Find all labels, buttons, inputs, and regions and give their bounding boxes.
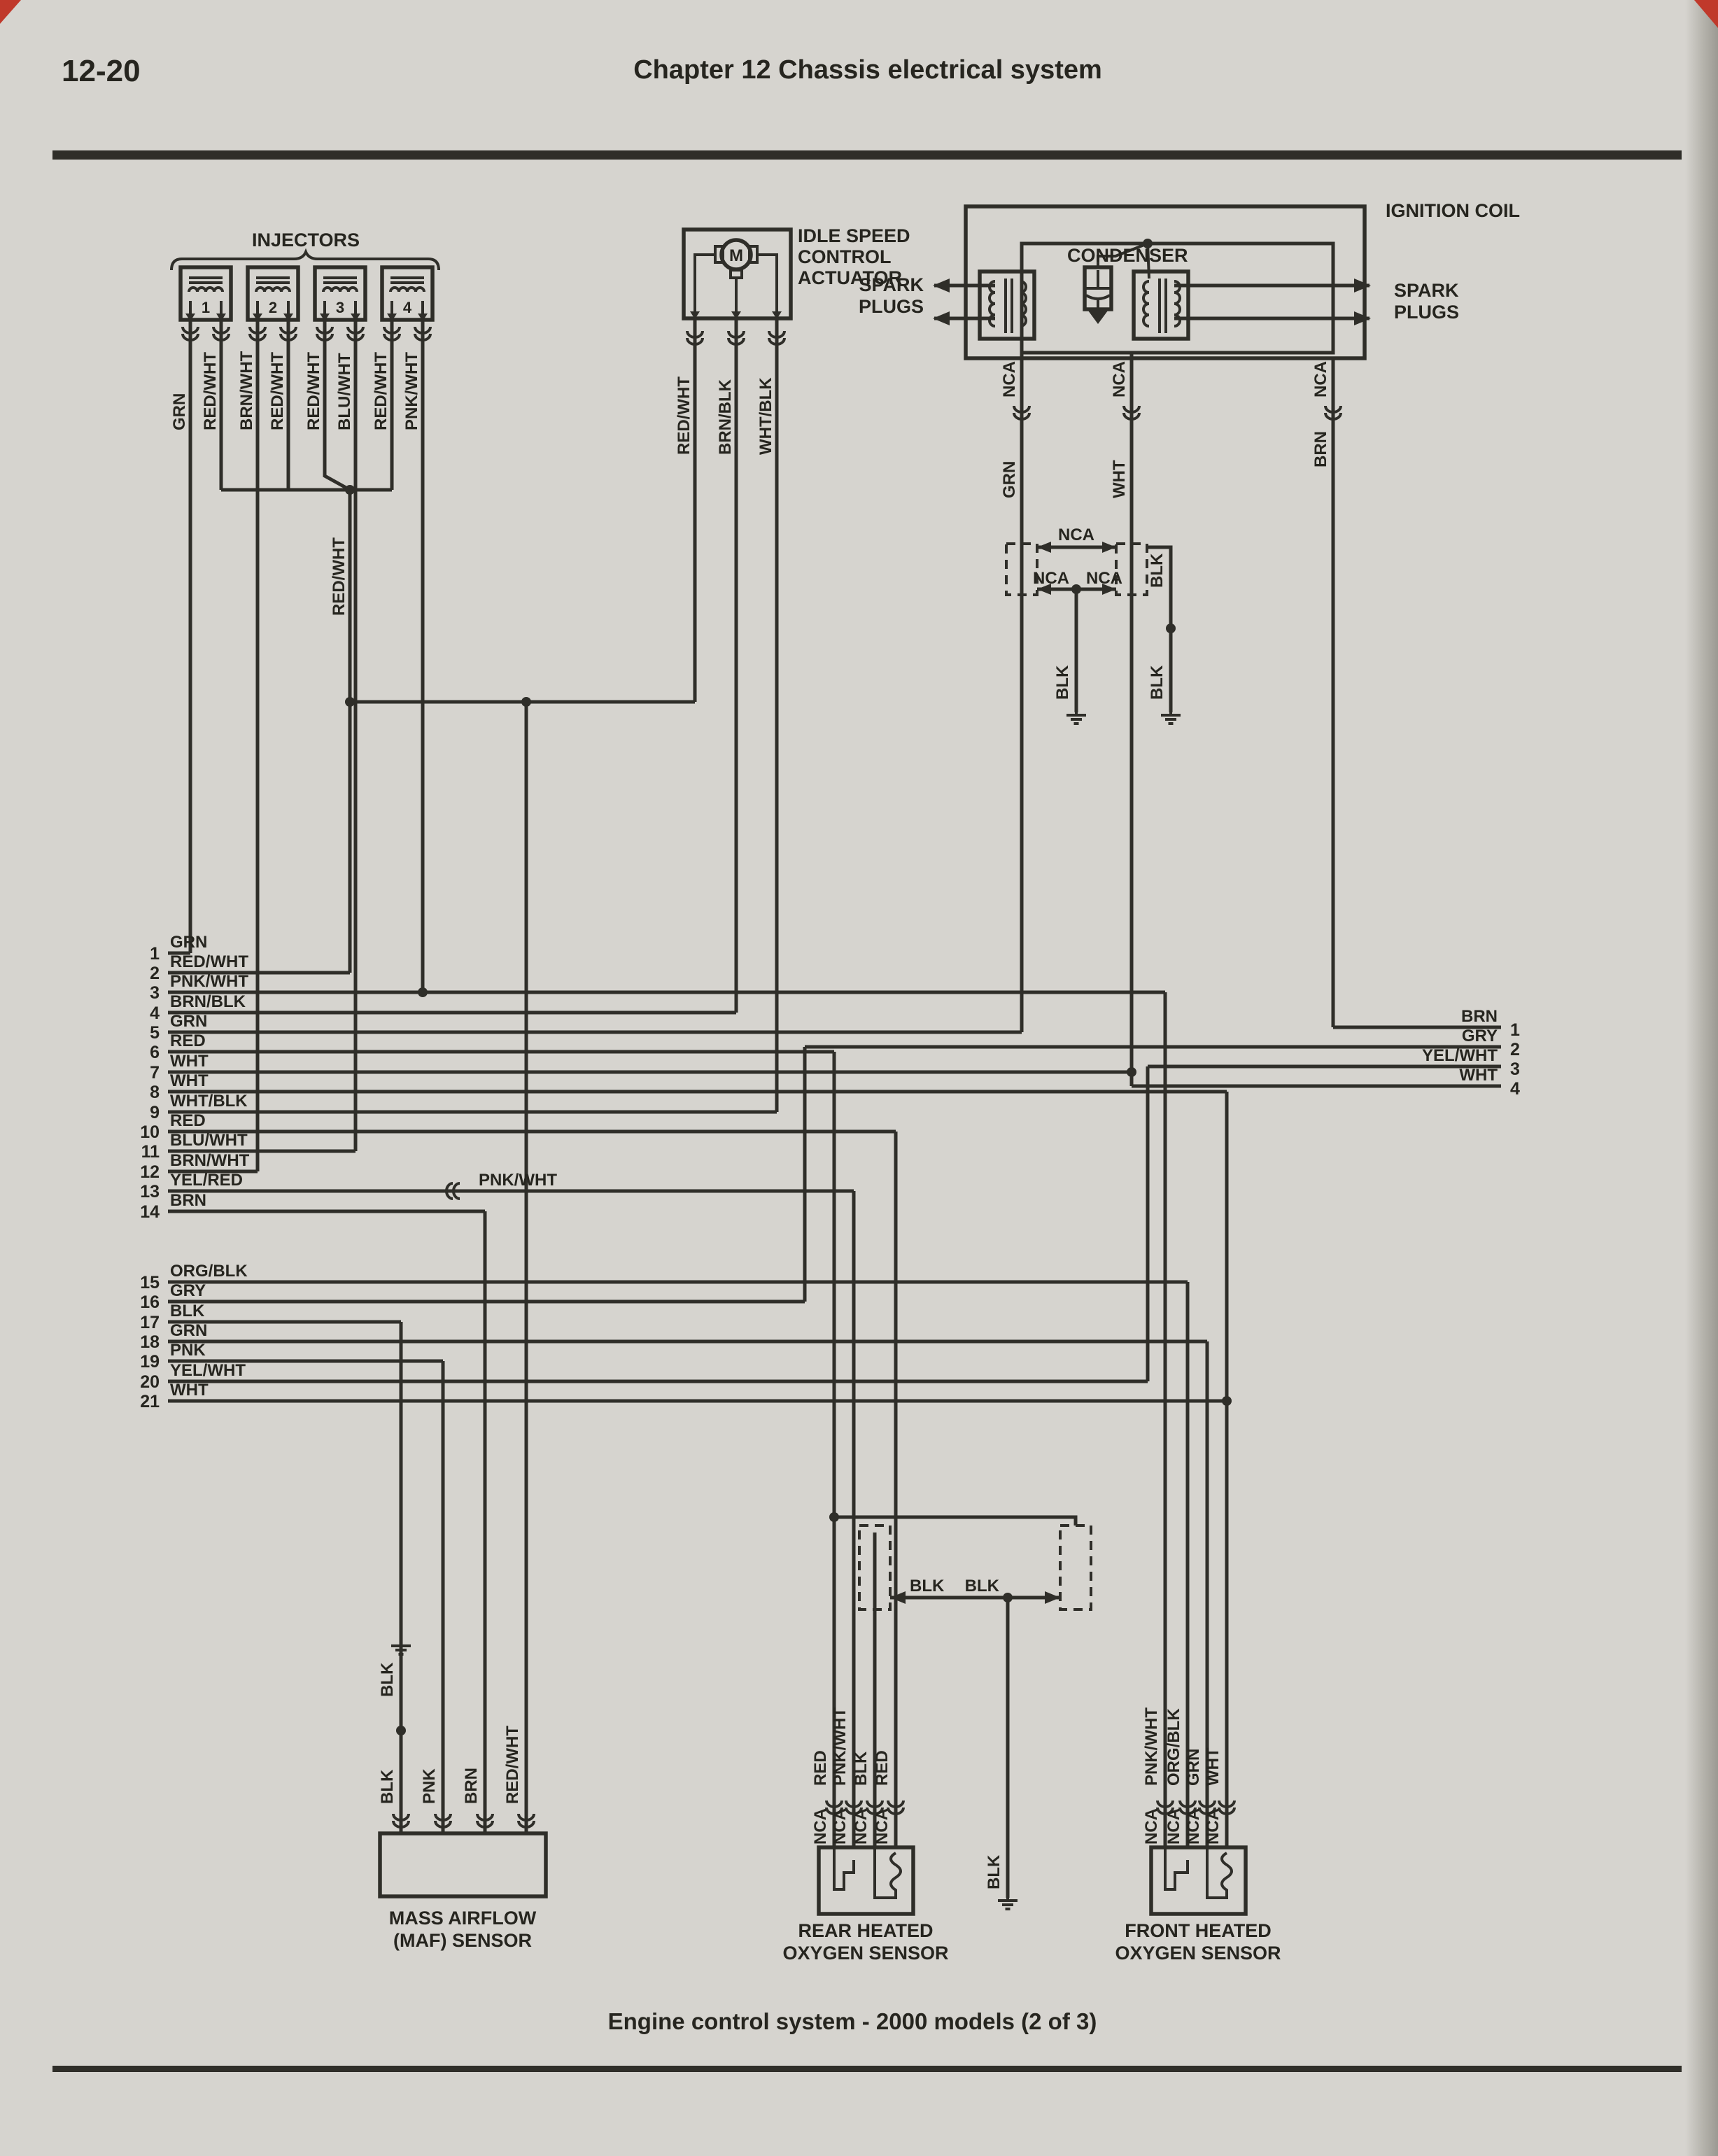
injector-number: 4 bbox=[403, 299, 412, 316]
wire-label-blk: BLK bbox=[985, 1854, 1004, 1889]
page-footer: Engine control system - 2000 models (2 o… bbox=[52, 2008, 1682, 2072]
wire-label-blk: BLK bbox=[378, 1662, 397, 1697]
terminal-label: WHT bbox=[170, 1381, 209, 1400]
maf-sensor: MASS AIRFLOW (MAF) SENSOR BLK BLK PNK BR… bbox=[378, 1211, 546, 1951]
terminal-label: GRY bbox=[1462, 1027, 1498, 1045]
wiring-diagram: 12-20 Chapter 12 Chassis electrical syst… bbox=[0, 0, 1718, 2156]
terminal-number: 20 bbox=[140, 1372, 160, 1392]
rear-o2-sensor: REAR HEATED OXYGEN SENSOR RED PNK/WHT BL… bbox=[782, 1052, 948, 1964]
injector-1: 1 bbox=[181, 267, 231, 321]
terminal-label: GRN bbox=[170, 1321, 207, 1340]
wire-label: RED bbox=[873, 1750, 892, 1786]
terminal-number: 9 bbox=[150, 1103, 160, 1122]
terminal-label: ORG/BLK bbox=[170, 1262, 248, 1281]
front-o2-title-line: FRONT HEATED bbox=[1125, 1920, 1272, 1941]
wire-label-grn: GRN bbox=[1000, 461, 1019, 498]
maf-title-line: MASS AIRFLOW bbox=[389, 1908, 537, 1929]
nca-label: NCA bbox=[1184, 1808, 1203, 1845]
page-number: 12-20 bbox=[62, 54, 141, 88]
spark-plugs-label: SPARK bbox=[1394, 280, 1459, 301]
wire-label: RED/WHT bbox=[675, 376, 693, 455]
manual-page: 12-20 Chapter 12 Chassis electrical syst… bbox=[0, 0, 1718, 2156]
condenser-label: CONDENSER bbox=[1067, 245, 1188, 266]
wire-label: BRN/WHT bbox=[237, 351, 256, 430]
nca-label: NCA bbox=[873, 1808, 892, 1845]
nca-label: NCA bbox=[1204, 1808, 1223, 1845]
wire-label: PNK/WHT bbox=[402, 352, 421, 430]
wire-label: ORG/BLK bbox=[1164, 1708, 1183, 1786]
motor-symbol: M bbox=[729, 246, 743, 265]
terminal-label: BLK bbox=[170, 1302, 205, 1320]
terminal-label: WHT bbox=[170, 1071, 209, 1090]
wire-label-blk: BLK bbox=[1148, 553, 1167, 588]
nca-label: NCA bbox=[1142, 1808, 1161, 1845]
ignition-coil-title: IGNITION COIL bbox=[1386, 200, 1520, 221]
wire-label: BLK bbox=[378, 1769, 397, 1804]
terminal-label: YEL/WHT bbox=[170, 1361, 246, 1380]
wire-label-blk: BLK bbox=[965, 1577, 1000, 1595]
terminal-label-l13-right: PNK/WHT bbox=[479, 1171, 557, 1190]
maf-title-line: (MAF) SENSOR bbox=[393, 1930, 532, 1951]
terminal-number: 18 bbox=[140, 1332, 160, 1352]
spark-plugs-label: PLUGS bbox=[1394, 302, 1459, 323]
front-o2-title-line: OXYGEN SENSOR bbox=[1115, 1943, 1281, 1964]
wire-label: WHT/BLK bbox=[756, 377, 775, 455]
terminal-label: WHT bbox=[1459, 1066, 1498, 1085]
dashed-connector-front bbox=[1060, 1526, 1091, 1609]
terminal-number: 2 bbox=[150, 964, 160, 983]
terminal-label: RED/WHT bbox=[170, 952, 248, 971]
front-o2-sensor: FRONT HEATED OXYGEN SENSOR PNK/WHT ORG/B… bbox=[1115, 992, 1281, 1964]
terminal-number: 19 bbox=[140, 1352, 160, 1372]
terminal-number: 3 bbox=[150, 983, 160, 1003]
terminal-label: PNK/WHT bbox=[170, 972, 248, 991]
terminal-label: PNK bbox=[170, 1341, 206, 1360]
spark-plug-leads-right: SPARK PLUGS bbox=[1174, 279, 1459, 325]
footer-rule bbox=[52, 2066, 1682, 2072]
nca-label: NCA bbox=[1033, 569, 1069, 588]
terminal-label: BRN bbox=[1461, 1007, 1498, 1026]
injector-number: 2 bbox=[269, 299, 277, 316]
nca-label: NCA bbox=[1058, 526, 1094, 544]
terminal-label: WHT bbox=[170, 1052, 209, 1071]
wire-label: RED/WHT bbox=[372, 352, 390, 430]
wire-label: RED bbox=[811, 1750, 830, 1786]
wire-label-blk: BLK bbox=[910, 1577, 945, 1595]
terminal-label: YEL/WHT bbox=[1422, 1046, 1498, 1065]
wire-label: RED/WHT bbox=[503, 1726, 522, 1804]
terminal-label: BRN/BLK bbox=[170, 992, 246, 1011]
wire-label-redwht-bus: RED/WHT bbox=[330, 537, 348, 616]
coil-transformer-left bbox=[980, 272, 1034, 339]
terminal-label: BLU/WHT bbox=[170, 1131, 248, 1150]
terminal-label: RED bbox=[170, 1031, 206, 1050]
wire-label: BRN bbox=[462, 1768, 481, 1804]
terminal-number: 5 bbox=[150, 1023, 160, 1043]
header-rule bbox=[52, 150, 1682, 160]
injector-3: 3 bbox=[315, 267, 365, 321]
nca-label: NCA bbox=[1000, 361, 1019, 397]
terminal-number: 17 bbox=[140, 1313, 160, 1332]
terminal-number: 3 bbox=[1510, 1059, 1520, 1079]
nca-label: NCA bbox=[811, 1808, 830, 1845]
coil-transformer-right bbox=[1134, 272, 1188, 339]
terminal-number: 16 bbox=[140, 1292, 160, 1312]
terminal-label: BRN/WHT bbox=[170, 1151, 250, 1170]
page-gutter-shadow bbox=[1685, 0, 1718, 2156]
terminal-number: 10 bbox=[140, 1122, 160, 1142]
terminal-label: RED bbox=[170, 1111, 206, 1130]
terminal-label: GRN bbox=[170, 1012, 207, 1031]
terminal-number: 12 bbox=[140, 1162, 160, 1182]
wire-label: BLK bbox=[852, 1751, 871, 1786]
wire-label-brn: BRN bbox=[1311, 431, 1330, 467]
terminal-number: 11 bbox=[141, 1142, 160, 1162]
mid-ground-network: BLK BLK BLK bbox=[829, 1512, 1091, 1909]
terminal-label: YEL/RED bbox=[170, 1171, 243, 1190]
wire-label: PNK bbox=[420, 1768, 439, 1804]
rear-o2-title-line: REAR HEATED bbox=[798, 1920, 933, 1941]
injector-number: 3 bbox=[336, 299, 344, 316]
terminal-label: GRN bbox=[170, 933, 207, 952]
isc-actuator: M IDLE SPEED CONTROL ACTUATOR RED/WHT BR… bbox=[675, 225, 910, 455]
coil-wires: NCA NCA NCA GRN WHT BRN NCA NCA NCA BLK … bbox=[1000, 353, 1341, 1086]
terminal-number: 4 bbox=[1510, 1079, 1520, 1099]
isc-title-line: CONTROL bbox=[798, 246, 891, 267]
wire-label: BLU/WHT bbox=[335, 353, 354, 430]
terminal-label: WHT/BLK bbox=[170, 1092, 248, 1111]
wire-label: GRN bbox=[1184, 1749, 1203, 1786]
terminal-number: 2 bbox=[1510, 1040, 1520, 1059]
condenser: CONDENSER bbox=[1067, 239, 1188, 324]
terminal-number: 6 bbox=[150, 1043, 160, 1062]
injectors-group: INJECTORS 1 2 3 4 bbox=[170, 230, 439, 616]
spark-plugs-label: PLUGS bbox=[859, 296, 924, 317]
wire-label-wht: WHT bbox=[1110, 460, 1129, 498]
terminal-number: 1 bbox=[1510, 1020, 1520, 1040]
wire-label: BRN/BLK bbox=[716, 379, 735, 455]
terminal-number: 1 bbox=[150, 944, 160, 964]
wire-label: WHT bbox=[1204, 1747, 1223, 1786]
spark-plug-leads-left: SPARK PLUGS bbox=[859, 274, 995, 325]
nca-label: NCA bbox=[852, 1808, 871, 1845]
spark-plugs-label: SPARK bbox=[859, 274, 924, 295]
terminal-number: 13 bbox=[140, 1182, 160, 1202]
wire-label: RED/WHT bbox=[268, 352, 287, 430]
wire-label: RED/WHT bbox=[304, 352, 323, 430]
injectors-title: INJECTORS bbox=[252, 230, 360, 251]
injector-4: 4 bbox=[382, 267, 432, 321]
wire-label: RED/WHT bbox=[201, 352, 220, 430]
chapter-title: Chapter 12 Chassis electrical system bbox=[633, 55, 1102, 85]
diagram-caption: Engine control system - 2000 models (2 o… bbox=[608, 2008, 1097, 2034]
wire-label-blk: BLK bbox=[1148, 665, 1167, 700]
nca-label: NCA bbox=[1164, 1808, 1183, 1845]
nca-label: NCA bbox=[1086, 569, 1122, 588]
terminal-number: 4 bbox=[150, 1003, 160, 1023]
nca-label: NCA bbox=[831, 1808, 850, 1845]
terminal-number: 15 bbox=[140, 1273, 160, 1292]
right-terminal-list: BRN 1 GRY 2 YEL/WHT 3 WHT 4 bbox=[805, 1007, 1520, 1381]
terminal-label: BRN bbox=[170, 1191, 206, 1210]
nca-label: NCA bbox=[1110, 361, 1129, 397]
terminal-number: 21 bbox=[140, 1392, 160, 1411]
terminal-label: GRY bbox=[170, 1281, 206, 1300]
wire-label: PNK/WHT bbox=[831, 1707, 850, 1786]
isc-title-line: IDLE SPEED bbox=[798, 225, 910, 246]
ignition-coil: IGNITION COIL SPARK PLUGS SPARK PLUGS bbox=[859, 200, 1520, 358]
injector-2: 2 bbox=[248, 267, 298, 321]
terminal-number: 8 bbox=[150, 1083, 160, 1102]
wire-label: PNK/WHT bbox=[1142, 1707, 1161, 1786]
injector-number: 1 bbox=[202, 299, 210, 316]
page-header: 12-20 Chapter 12 Chassis electrical syst… bbox=[52, 54, 1682, 160]
terminal-number: 7 bbox=[150, 1063, 160, 1083]
terminal-number: 14 bbox=[140, 1202, 160, 1222]
rear-o2-title-line: OXYGEN SENSOR bbox=[782, 1943, 948, 1964]
nca-label: NCA bbox=[1311, 361, 1330, 397]
corner-mark-left bbox=[0, 0, 21, 24]
left-terminal-list: 1 GRN 2 RED/WHT 3 PNK/WHT 4 BRN/BLK 5 GR… bbox=[140, 933, 1232, 1411]
wire-label-blk: BLK bbox=[1053, 665, 1072, 700]
wire-label: GRN bbox=[170, 393, 189, 430]
